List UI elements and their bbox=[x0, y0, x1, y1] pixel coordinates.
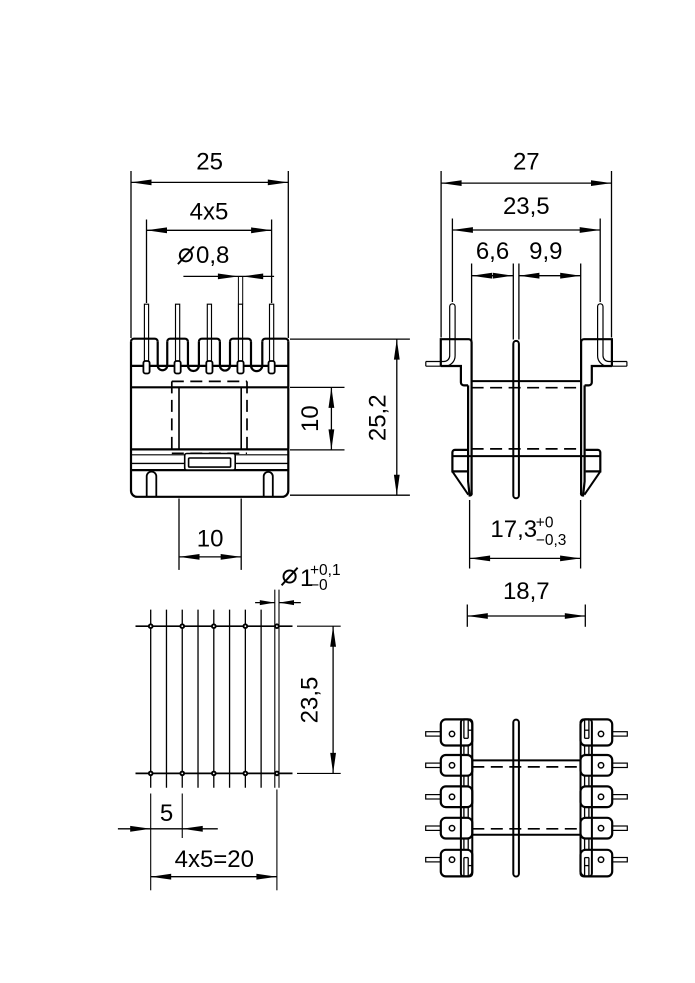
svg-text:23,5: 23,5 bbox=[503, 193, 550, 220]
svg-text:−0: −0 bbox=[310, 577, 328, 594]
svg-text:0,8: 0,8 bbox=[196, 242, 229, 269]
svg-text:−0,3: −0,3 bbox=[536, 532, 567, 549]
svg-text:4x5=20: 4x5=20 bbox=[175, 846, 254, 873]
svg-text:25,2: 25,2 bbox=[365, 394, 392, 441]
svg-text:10: 10 bbox=[297, 405, 324, 432]
svg-text:10: 10 bbox=[197, 526, 224, 553]
svg-text:17,3: 17,3 bbox=[490, 516, 537, 543]
svg-text:23,5: 23,5 bbox=[296, 677, 323, 724]
svg-text:4x5: 4x5 bbox=[190, 199, 229, 226]
svg-text:+0: +0 bbox=[536, 514, 554, 531]
svg-text:27: 27 bbox=[513, 149, 540, 176]
svg-text:9,9: 9,9 bbox=[529, 238, 562, 265]
svg-text:5: 5 bbox=[160, 800, 173, 827]
svg-text:25: 25 bbox=[196, 149, 223, 176]
svg-text:6,6: 6,6 bbox=[476, 238, 509, 265]
svg-text:18,7: 18,7 bbox=[503, 578, 550, 605]
